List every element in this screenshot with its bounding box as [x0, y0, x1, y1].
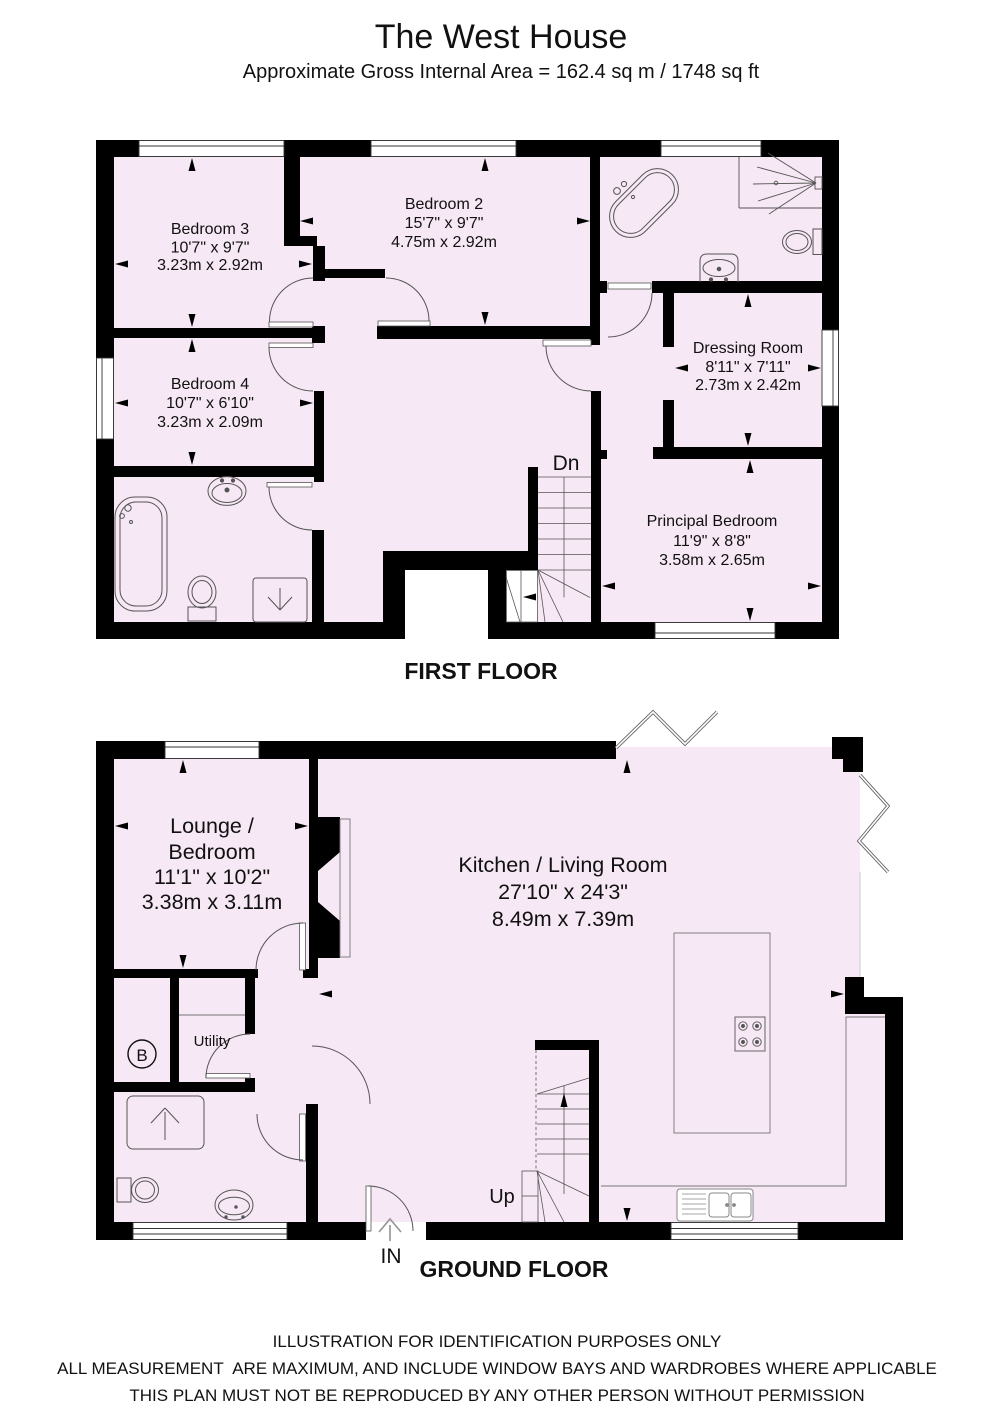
svg-text:Approximate Gross Internal Are: Approximate Gross Internal Area = 162.4 …: [243, 61, 760, 83]
svg-text:3.23m x 2.92m: 3.23m x 2.92m: [157, 257, 263, 274]
svg-text:Dressing Room: Dressing Room: [693, 340, 803, 357]
svg-text:3.23m x 2.09m: 3.23m x 2.09m: [157, 414, 263, 431]
svg-text:FIRST FLOOR: FIRST FLOOR: [404, 658, 558, 684]
svg-text:ILLUSTRATION FOR IDENTIFICATIO: ILLUSTRATION FOR IDENTIFICATION PURPOSES…: [273, 1332, 722, 1351]
svg-text:4.75m x 2.92m: 4.75m x 2.92m: [391, 234, 497, 251]
svg-text:Dn: Dn: [553, 452, 580, 475]
svg-text:8'11" x 7'11": 8'11" x 7'11": [705, 359, 790, 376]
svg-text:Bedroom: Bedroom: [168, 840, 255, 864]
svg-text:B: B: [136, 1046, 147, 1065]
svg-text:27'10" x 24'3": 27'10" x 24'3": [498, 880, 628, 904]
svg-text:Up: Up: [489, 1186, 515, 1208]
svg-text:Kitchen / Living Room: Kitchen / Living Room: [458, 853, 667, 877]
svg-text:The West House: The West House: [375, 18, 628, 56]
svg-text:10'7" x 9'7": 10'7" x 9'7": [171, 240, 250, 257]
svg-text:3.38m x 3.11m: 3.38m x 3.11m: [142, 890, 283, 914]
svg-text:8.49m x 7.39m: 8.49m x 7.39m: [492, 907, 634, 931]
svg-text:Bedroom 2: Bedroom 2: [405, 196, 483, 213]
svg-text:Bedroom 4: Bedroom 4: [171, 376, 249, 393]
svg-text:Utility: Utility: [194, 1033, 231, 1050]
svg-text:10'7" x 6'10": 10'7" x 6'10": [166, 395, 254, 412]
svg-text:ALL MEASUREMENT ARE MAXIMUM,: ALL MEASUREMENT ARE MAXIMUM, AND INCLUDE…: [57, 1359, 937, 1378]
svg-text:15'7" x 9'7": 15'7" x 9'7": [405, 215, 484, 232]
svg-text:Bedroom 3: Bedroom 3: [171, 221, 249, 238]
svg-text:11'1" x 10'2": 11'1" x 10'2": [154, 865, 270, 889]
svg-text:Lounge /: Lounge /: [170, 814, 254, 838]
svg-text:11'9" x 8'8": 11'9" x 8'8": [673, 533, 751, 550]
svg-text:IN: IN: [381, 1245, 402, 1268]
svg-text:3.58m x 2.65m: 3.58m x 2.65m: [659, 552, 765, 569]
svg-text:THIS PLAN MUST NOT BE REPRODUC: THIS PLAN MUST NOT BE REPRODUCED BY ANY …: [129, 1386, 864, 1405]
svg-text:GROUND FLOOR: GROUND FLOOR: [419, 1256, 608, 1282]
svg-text:2.73m x 2.42m: 2.73m x 2.42m: [695, 377, 801, 394]
svg-text:Principal Bedroom: Principal Bedroom: [647, 513, 778, 530]
